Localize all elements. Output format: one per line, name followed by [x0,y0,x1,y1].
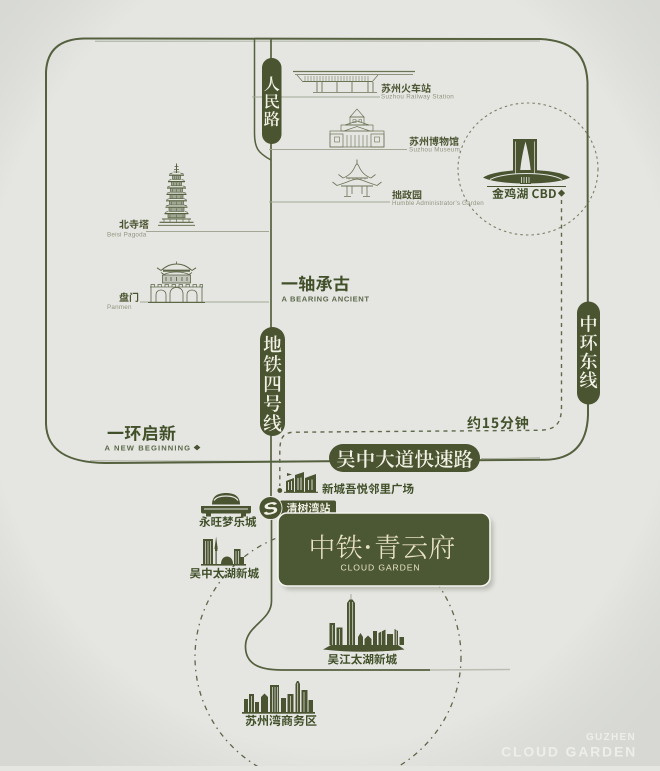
svg-text:Suzhou Railway Station: Suzhou Railway Station [381,94,454,101]
svg-text:CLOUD GARDEN: CLOUD GARDEN [501,744,637,760]
svg-text:CLOUD GARDEN: CLOUD GARDEN [340,563,420,573]
svg-text:Panmen: Panmen [107,304,132,311]
svg-text:Beisi Pagoda: Beisi Pagoda [107,232,147,239]
svg-text:A BEARING ANCIENT: A BEARING ANCIENT [282,295,370,304]
svg-text:A NEW BEGINNING: A NEW BEGINNING [105,444,192,453]
svg-text:Suzhou Museum: Suzhou Museum [409,147,460,154]
svg-text:GUZHEN: GUZHEN [586,732,636,743]
